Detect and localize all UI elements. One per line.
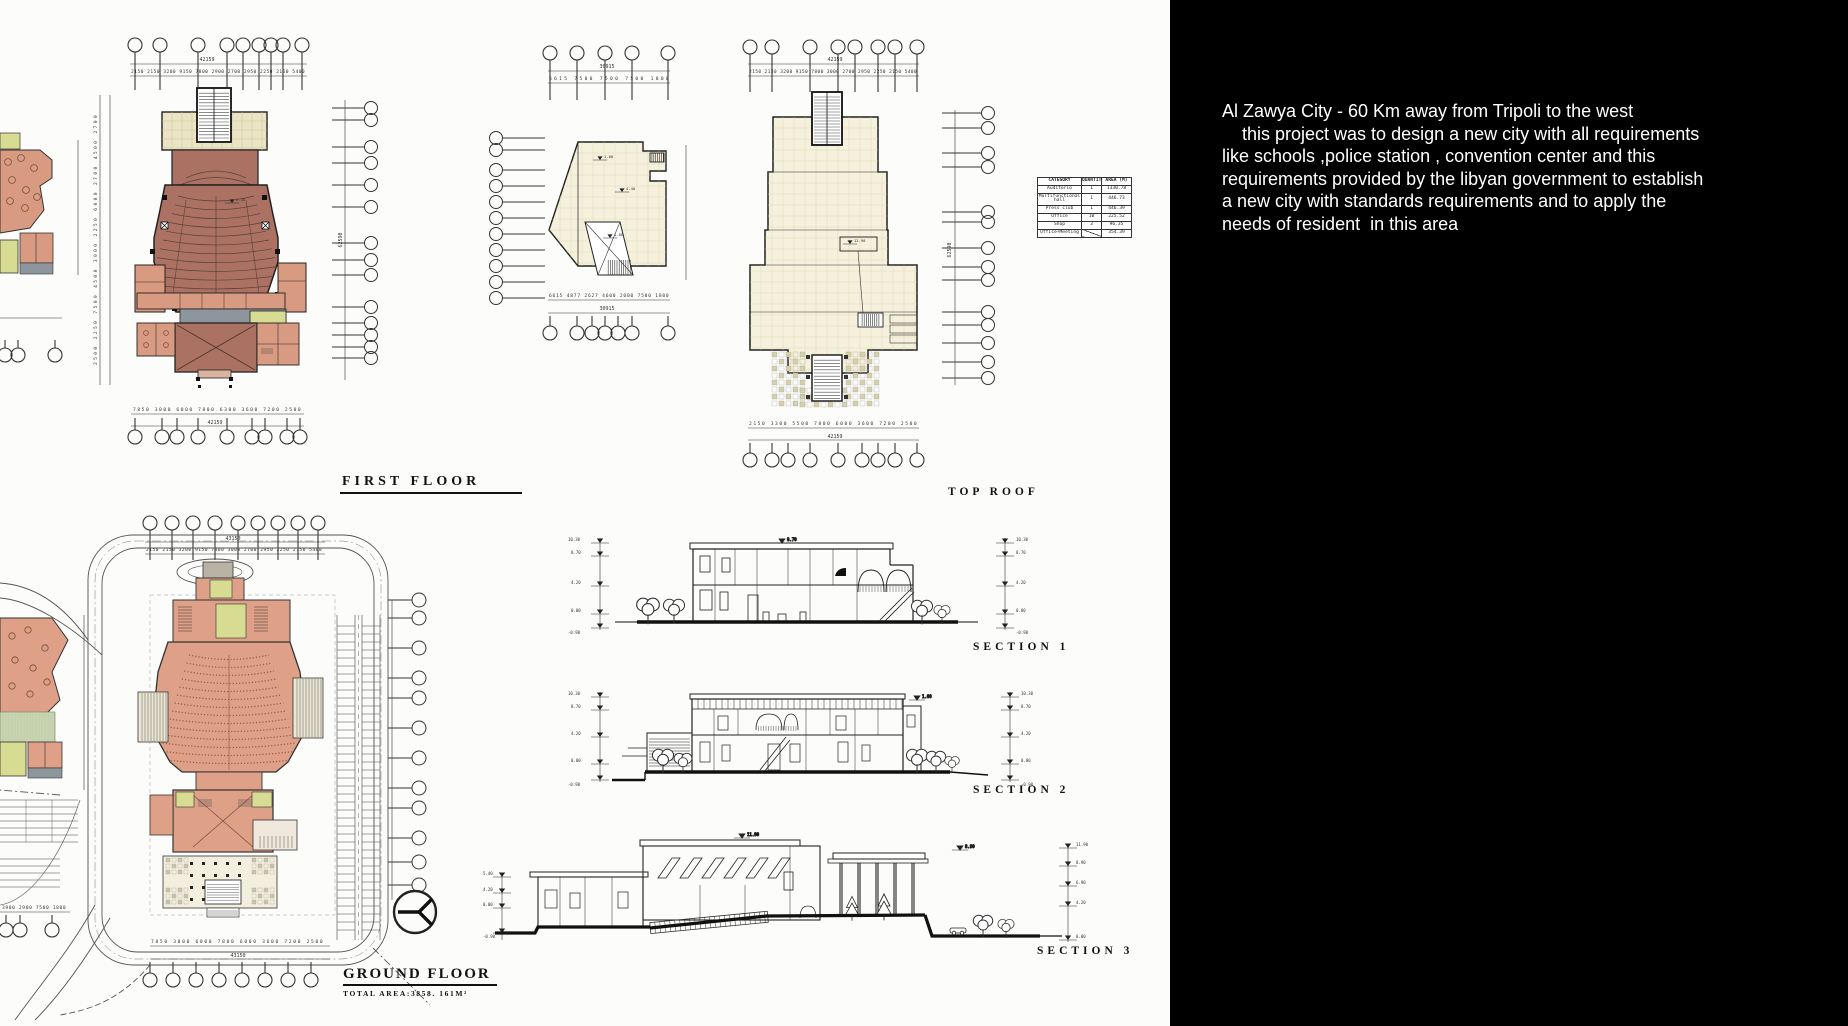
svg-text:8.70: 8.70: [571, 550, 581, 555]
description-line: requirements provided by the libyan gove…: [1222, 168, 1822, 191]
svg-text:10.30: 10.30: [568, 537, 581, 542]
description-line: Al Zawya City - 60 Km away from Tripoli …: [1222, 100, 1822, 123]
svg-text:6615 7500 7500 7500 1800: 6615 7500 7500 7500 1800: [549, 76, 669, 82]
svg-text:4.20: 4.20: [483, 887, 493, 892]
parking-right: [337, 600, 392, 940]
dimension-chain-bottom: 7850 3000 6000 7800 6300 3600 7200 2500 …: [131, 407, 304, 426]
svg-text:7850 3000 6000 7800 6000 3600: 7850 3000 6000 7800 6000 3600 7200 2500: [151, 939, 323, 945]
dimension-chain-top: 42159 2150 2150 3200 9150 7800 2900 2700…: [130, 57, 307, 76]
svg-text:0.00: 0.00: [1076, 934, 1086, 939]
mid-roof-plan: 30915 6615 7500 7500 7500 1800 1.00 4.40…: [480, 20, 770, 440]
dimension-chain-bottom: 2150 3300 5500 7800 6000 3600 7200 2500 …: [748, 421, 919, 440]
svg-text:42159: 42159: [207, 420, 222, 426]
ground-floor-label: GROUND FLOOR: [343, 966, 497, 986]
dimension-chain-bottom: 6615 4877 2627 4600 2000 7500 1800 30915: [548, 293, 670, 313]
svg-text:2150 2150 3200 9150 7800 3000: 2150 2150 3200 9150 7800 3000 2700 2950 …: [749, 69, 917, 75]
svg-text:42159: 42159: [827, 57, 842, 63]
table-row: Auditorio 1 1330.78: [1038, 185, 1132, 193]
level-markers-left: 5.40 4.20 0.00 -0.90: [483, 871, 511, 940]
dimension-chain-right: 62590: [338, 100, 345, 380]
rooms-band: [137, 293, 286, 324]
table-row: Press club 1 446.39: [1038, 206, 1132, 214]
dimension-chain-top: 30915 6615 7500 7500 7500 1800: [548, 64, 670, 83]
svg-text:10.30: 10.30: [568, 691, 581, 696]
north-arrow-icon: [394, 891, 436, 933]
level-markers-right: 10.30 8.70 4.20 0.00 -0.90: [996, 537, 1029, 635]
svg-text:8.70: 8.70: [571, 704, 581, 709]
project-description: Al Zawya City - 60 Km away from Tripoli …: [1222, 100, 1822, 235]
table-row: Office 10 225.52: [1038, 214, 1132, 222]
svg-text:4.40: 4.40: [626, 186, 636, 191]
level-markers-right: 11.90 8.90 6.90 4.20 0.00: [1059, 842, 1089, 942]
stage-apron: [172, 150, 258, 185]
svg-text:62590: 62590: [338, 232, 344, 247]
col-header: AREA (M): [1102, 178, 1132, 186]
svg-text:0.00: 0.00: [483, 902, 493, 907]
section-1-drawing: 8.70 10.30 8.70 4.20 0.00 -0.90 10.30 8.…: [555, 525, 1090, 655]
total-area-label: TOTAL AREA:3858. 161M²: [343, 989, 468, 998]
description-line: a new city with standards requirements a…: [1222, 190, 1822, 213]
svg-text:0.00: 0.00: [1021, 758, 1031, 763]
svg-text:4.20: 4.20: [571, 580, 581, 585]
svg-text:8.90: 8.90: [1076, 860, 1086, 865]
section-1-label: SECTION 1: [973, 641, 1069, 653]
svg-text:4.20: 4.20: [1016, 580, 1026, 585]
svg-text:6615 4877 2627 4600 2000 7500: 6615 4877 2627 4600 2000 7500 1800: [549, 293, 669, 299]
svg-text:30915: 30915: [599, 64, 614, 70]
svg-text:8.70: 8.70: [1021, 704, 1031, 709]
svg-text:4.20: 4.20: [1021, 731, 1031, 736]
svg-text:8.90: 8.90: [965, 844, 975, 849]
section-3-drawing: 11.90 8.90 5.40 4.20 0.00 -0.90 11.90 8.…: [480, 815, 1170, 965]
left-site-fragment: 3900 2900 7500 1800: [0, 615, 84, 937]
svg-text:5.40: 5.40: [483, 871, 493, 876]
dimension-chain-left: 2500 2250 7500 4500 3000 2250 6000 2700 …: [93, 95, 110, 385]
svg-text:0.00: 0.00: [1016, 608, 1026, 613]
section-building: 8.70: [690, 537, 914, 622]
svg-text:2500 2250 7500 4500 3000 2250: 2500 2250 7500 4500 3000 2250 6000 2700 …: [93, 115, 99, 365]
svg-text:12.90: 12.90: [854, 238, 866, 243]
description-line: needs of resident in this area: [1222, 213, 1822, 236]
svg-text:10.30: 10.30: [1021, 691, 1034, 696]
table-row: Office+Meeting 354.39: [1038, 229, 1132, 237]
svg-text:1.80: 1.80: [614, 232, 624, 237]
svg-text:4.40: 4.40: [236, 197, 246, 202]
svg-text:8.70: 8.70: [1016, 550, 1026, 555]
table-row: Shop 3 96.35: [1038, 221, 1132, 229]
svg-text:11.90: 11.90: [747, 832, 760, 837]
ground-floor-plan: 43150 2150 2150 3200 9150 7800 3000 2700…: [0, 500, 475, 1020]
col-header: QUANTITY: [1082, 178, 1102, 186]
svg-text:3900 2900 7500 1800: 3900 2900 7500 1800: [2, 905, 66, 911]
entrance-lobby: [175, 323, 257, 388]
description-line: this project was to design a new city wi…: [1222, 123, 1822, 146]
svg-text:1.00: 1.00: [604, 154, 614, 159]
roof-stair-top: [812, 92, 842, 145]
svg-text:1.00: 1.00: [922, 694, 932, 699]
svg-text:42159: 42159: [199, 57, 214, 63]
level-markers-right: 10.30 8.70 4.20 0.00 -0.90: [1001, 691, 1034, 787]
left-edge-plan-fragment: [0, 133, 78, 362]
svg-text:30915: 30915: [599, 306, 614, 312]
svg-text:6.90: 6.90: [1076, 880, 1086, 885]
first-floor-plan: 42159 2150 2150 3200 9150 7800 2900 2700…: [0, 20, 500, 480]
presentation-sheet: 42159 2150 2150 3200 9150 7800 2900 2700…: [0, 0, 1848, 1026]
svg-text:2150 2150 3200 9150 7800 2900: 2150 2150 3200 9150 7800 2900 2700 2950 …: [131, 69, 305, 75]
dimension-chain-bottom: 7850 3000 6000 7800 6000 3600 7200 2500 …: [150, 939, 330, 959]
main-building: [138, 562, 335, 917]
svg-text:2150 3300 5500 7800 6000 3600: 2150 3300 5500 7800 6000 3600 7200 2500: [749, 421, 917, 427]
first-floor-label: FIRST FLOOR: [340, 474, 522, 494]
svg-text:-0.90: -0.90: [483, 934, 496, 939]
section-2-label: SECTION 2: [973, 784, 1069, 796]
svg-text:-0.90: -0.90: [568, 782, 581, 787]
svg-text:-0.90: -0.90: [1016, 630, 1029, 635]
svg-text:11.90: 11.90: [1076, 842, 1089, 847]
info-panel: Al Zawya City - 60 Km away from Tripoli …: [1170, 0, 1848, 1026]
svg-text:4.20: 4.20: [1076, 900, 1086, 905]
description-line: like schools ,police station , conventio…: [1222, 145, 1822, 168]
level-markers-left: 10.30 8.70 4.20 0.00 -0.90: [568, 691, 609, 787]
svg-text:4.20: 4.20: [571, 731, 581, 736]
stage-stair: [197, 88, 231, 142]
roof-outline: [750, 117, 917, 373]
dimension-chain-top: 42159 2150 2150 3200 9150 7800 3000 2700…: [748, 57, 919, 76]
level-markers-left: 10.30 8.70 4.20 0.00 -0.90: [568, 537, 609, 635]
svg-text:0.00: 0.00: [571, 608, 581, 613]
svg-text:8.70: 8.70: [787, 537, 797, 542]
table-row: Multifunctional hall 1 446.73: [1038, 193, 1132, 206]
svg-text:0.00: 0.00: [571, 758, 581, 763]
svg-text:-0.90: -0.90: [568, 630, 581, 635]
section-3-label: SECTION 3: [1037, 945, 1133, 957]
area-schedule-table: CATEGORY QUANTITY AREA (M) Auditorio 1 1…: [1037, 177, 1132, 238]
ground-line: [612, 772, 988, 780]
top-roof-plan: 42159 2150 2150 3200 9150 7800 3000 2700…: [735, 25, 1070, 485]
svg-text:10.30: 10.30: [1016, 537, 1029, 542]
svg-text:42159: 42159: [827, 434, 842, 440]
svg-text:7850 3000 6000 7800 6300 3600: 7850 3000 6000 7800 6300 3600 7200 2500: [133, 407, 301, 413]
col-header: CATEGORY: [1038, 178, 1082, 186]
top-roof-label: TOP ROOF: [948, 486, 1039, 498]
svg-text:43150: 43150: [230, 953, 245, 959]
svg-text:62590: 62590: [947, 242, 953, 257]
